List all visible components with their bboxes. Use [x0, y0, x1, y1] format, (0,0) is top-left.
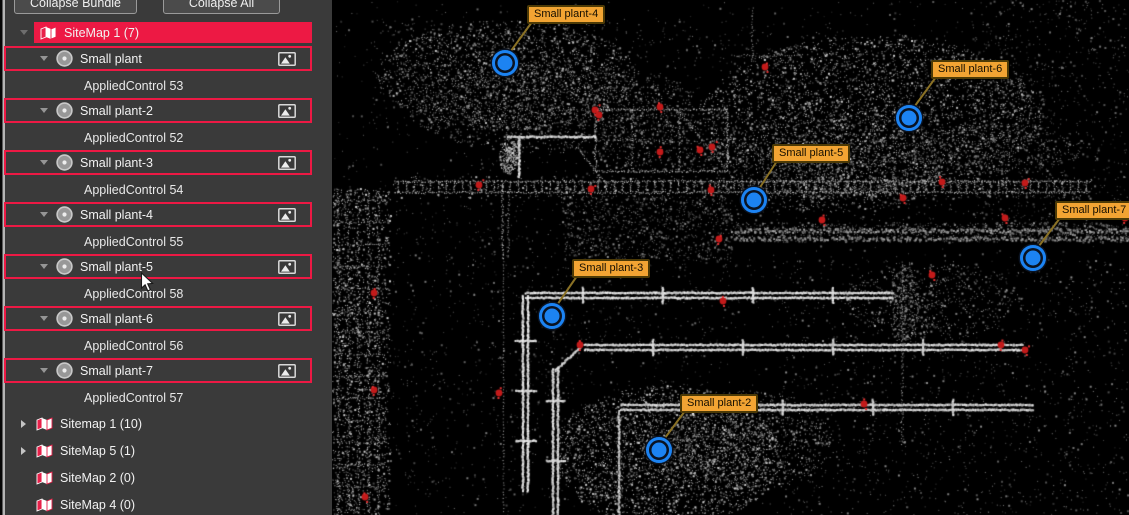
tree-item-plant[interactable]: Small plant-4	[4, 202, 312, 227]
plant-label[interactable]: Small plant-6	[931, 60, 1009, 79]
tree-item-label: SiteMap 4 (0)	[60, 498, 135, 512]
collapse-bundle-label: Collapse Bundle	[30, 0, 121, 10]
point-cloud-canvas[interactable]	[332, 0, 1129, 515]
tree-item-plant[interactable]: Small plant	[4, 46, 312, 71]
tree-item-label: AppliedControl 56	[84, 339, 183, 353]
tree-item-bundle-selected[interactable]: SiteMap 1 (7)	[4, 22, 312, 43]
tree-item-label: Small plant	[80, 52, 142, 66]
image-preview-button[interactable]	[278, 104, 296, 118]
plant-marker[interactable]	[492, 50, 518, 76]
sitemap-icon	[40, 26, 57, 40]
tree-item-control[interactable]: AppliedControl 54	[4, 179, 312, 201]
image-icon	[278, 156, 296, 170]
image-preview-button[interactable]	[278, 364, 296, 378]
tree-item-plant[interactable]: Small plant-2	[4, 98, 312, 123]
tree-item-label: SiteMap 2 (0)	[60, 471, 135, 485]
application-window: Collapse Bundle Collapse All SiteMap 1 (…	[0, 0, 1129, 515]
tree-item-label: SiteMap 5 (1)	[60, 444, 135, 458]
image-preview-button[interactable]	[278, 312, 296, 326]
sitemap-tree: SiteMap 1 (7)Small plantAppliedControl 5…	[4, 22, 312, 515]
expander-placeholder	[18, 493, 29, 515]
collapse-all-label: Collapse All	[189, 0, 254, 10]
tree-item-label: AppliedControl 53	[84, 79, 183, 93]
sitemap-icon	[36, 498, 53, 512]
tree-item-plant[interactable]: Small plant-3	[4, 150, 312, 175]
expander-down-icon[interactable]	[38, 256, 49, 277]
tree-item-control[interactable]: AppliedControl 58	[4, 283, 312, 305]
scan-point-icon	[56, 362, 73, 379]
tree-item-label: Small plant-7	[80, 364, 153, 378]
expander-down-icon[interactable]	[38, 360, 49, 381]
plant-label[interactable]: Small plant-5	[772, 144, 850, 163]
image-icon	[278, 364, 296, 378]
image-icon	[278, 104, 296, 118]
plant-marker[interactable]	[539, 303, 565, 329]
image-preview-button[interactable]	[278, 156, 296, 170]
scan-point-icon	[56, 154, 73, 171]
collapse-all-button[interactable]: Collapse All	[163, 0, 280, 14]
plant-marker[interactable]	[646, 437, 672, 463]
expander-right-icon[interactable]	[18, 439, 29, 462]
expander-placeholder	[18, 466, 29, 489]
image-icon	[278, 260, 296, 274]
expander-right-icon[interactable]	[18, 412, 29, 435]
scan-point-icon	[56, 102, 73, 119]
collapse-bundle-button[interactable]: Collapse Bundle	[14, 0, 137, 14]
image-icon	[278, 208, 296, 222]
tree-item-label: AppliedControl 55	[84, 235, 183, 249]
sidebar-panel: Collapse Bundle Collapse All SiteMap 1 (…	[0, 0, 332, 515]
scan-point-icon	[56, 206, 73, 223]
tree-item-label: SiteMap 1 (7)	[64, 26, 139, 40]
tree-item-label: Small plant-4	[80, 208, 153, 222]
expander-down-icon[interactable]	[38, 152, 49, 173]
tree-item-control[interactable]: AppliedControl 55	[4, 231, 312, 253]
tree-item-label: AppliedControl 52	[84, 131, 183, 145]
plant-marker[interactable]	[1020, 245, 1046, 271]
expander-down-icon[interactable]	[38, 48, 49, 69]
image-preview-button[interactable]	[278, 52, 296, 66]
tree-item-plant[interactable]: Small plant-6	[4, 306, 312, 331]
sitemap-icon	[36, 471, 53, 485]
plant-marker[interactable]	[741, 187, 767, 213]
tree-item-label: AppliedControl 57	[84, 391, 183, 405]
tree-item-control[interactable]: AppliedControl 53	[4, 75, 312, 97]
plant-label[interactable]: Small plant-4	[527, 5, 605, 24]
scan-point-icon	[56, 50, 73, 67]
tree-item-label: AppliedControl 58	[84, 287, 183, 301]
image-icon	[278, 312, 296, 326]
plant-marker[interactable]	[896, 105, 922, 131]
tree-item-label: AppliedControl 54	[84, 183, 183, 197]
mouse-cursor	[140, 272, 154, 293]
tree-item-plant[interactable]: Small plant-5	[4, 254, 312, 279]
tree-item-bundle[interactable]: SiteMap 2 (0)	[4, 466, 312, 489]
expander-down-icon[interactable]	[18, 22, 29, 43]
plant-label[interactable]: Small plant-2	[680, 394, 758, 413]
tree-item-bundle[interactable]: SiteMap 5 (1)	[4, 439, 312, 462]
tree-item-label: Small plant-3	[80, 156, 153, 170]
tree-item-plant[interactable]: Small plant-7	[4, 358, 312, 383]
selection-highlight: SiteMap 1 (7)	[34, 22, 312, 43]
tree-item-control[interactable]: AppliedControl 52	[4, 127, 312, 149]
image-preview-button[interactable]	[278, 260, 296, 274]
scan-point-icon	[56, 310, 73, 327]
sitemap-icon	[36, 417, 53, 431]
point-cloud-viewer[interactable]: Small plant-4Small plant-6Small plant-5S…	[332, 0, 1129, 515]
tree-item-label: Sitemap 1 (10)	[60, 417, 142, 431]
expander-down-icon[interactable]	[38, 204, 49, 225]
plant-label[interactable]: Small plant-3	[572, 259, 650, 278]
image-icon	[278, 52, 296, 66]
image-preview-button[interactable]	[278, 208, 296, 222]
tree-item-bundle[interactable]: SiteMap 4 (0)	[4, 493, 312, 515]
tree-item-control[interactable]: AppliedControl 57	[4, 387, 312, 409]
tree-item-label: Small plant-6	[80, 312, 153, 326]
plant-label[interactable]: Small plant-7	[1055, 201, 1129, 220]
sitemap-icon	[36, 444, 53, 458]
tree-item-bundle[interactable]: Sitemap 1 (10)	[4, 412, 312, 435]
tree-item-control[interactable]: AppliedControl 56	[4, 335, 312, 357]
scan-point-icon	[56, 258, 73, 275]
expander-down-icon[interactable]	[38, 100, 49, 121]
tree-item-label: Small plant-2	[80, 104, 153, 118]
expander-down-icon[interactable]	[38, 308, 49, 329]
